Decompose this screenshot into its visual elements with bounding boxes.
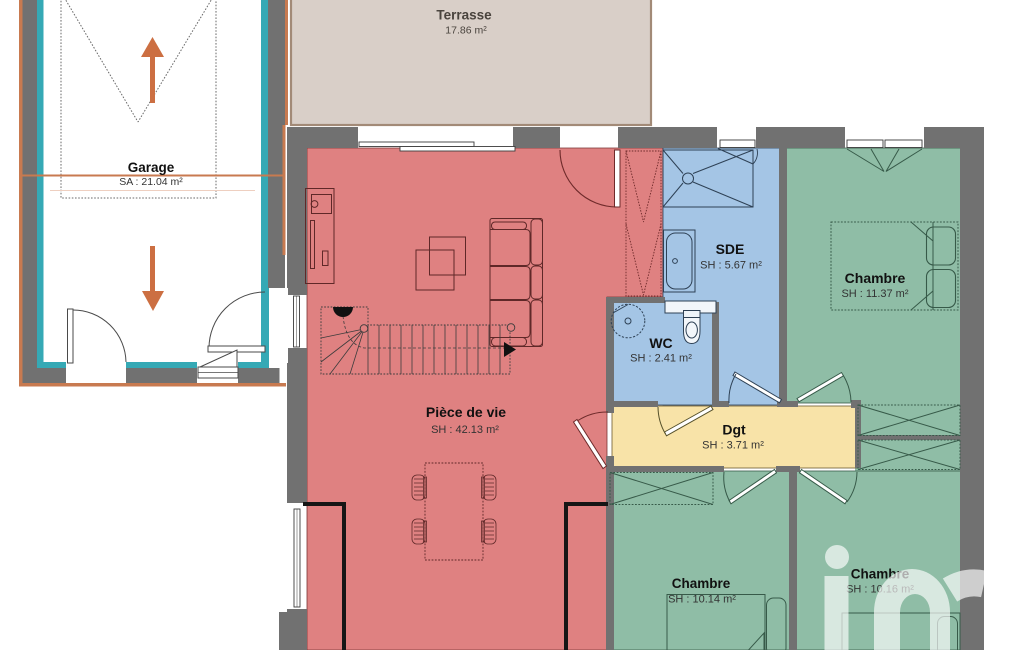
svg-text:Garage: Garage [128, 160, 175, 175]
svg-text:SH : 5.67 m²: SH : 5.67 m² [700, 260, 762, 272]
svg-text:SH : 42.13 m²: SH : 42.13 m² [431, 424, 499, 436]
svg-text:Dgt: Dgt [722, 422, 746, 438]
svg-text:SH : 10.14 m²: SH : 10.14 m² [668, 594, 736, 606]
svg-text:Chambre: Chambre [845, 270, 906, 286]
svg-text:SH : 11.37 m²: SH : 11.37 m² [841, 288, 908, 300]
svg-text:WC: WC [649, 335, 672, 351]
svg-text:Pièce de vie: Pièce de vie [426, 404, 506, 420]
svg-text:SDE: SDE [716, 241, 745, 257]
svg-text:Chambre: Chambre [672, 576, 731, 591]
svg-text:17.86 m²: 17.86 m² [445, 25, 487, 37]
svg-text:SA : 21.04 m²: SA : 21.04 m² [119, 176, 183, 188]
svg-text:SH : 2.41 m²: SH : 2.41 m² [630, 353, 692, 365]
svg-text:Terrasse: Terrasse [436, 8, 492, 23]
svg-text:SH : 3.71 m²: SH : 3.71 m² [702, 440, 764, 452]
